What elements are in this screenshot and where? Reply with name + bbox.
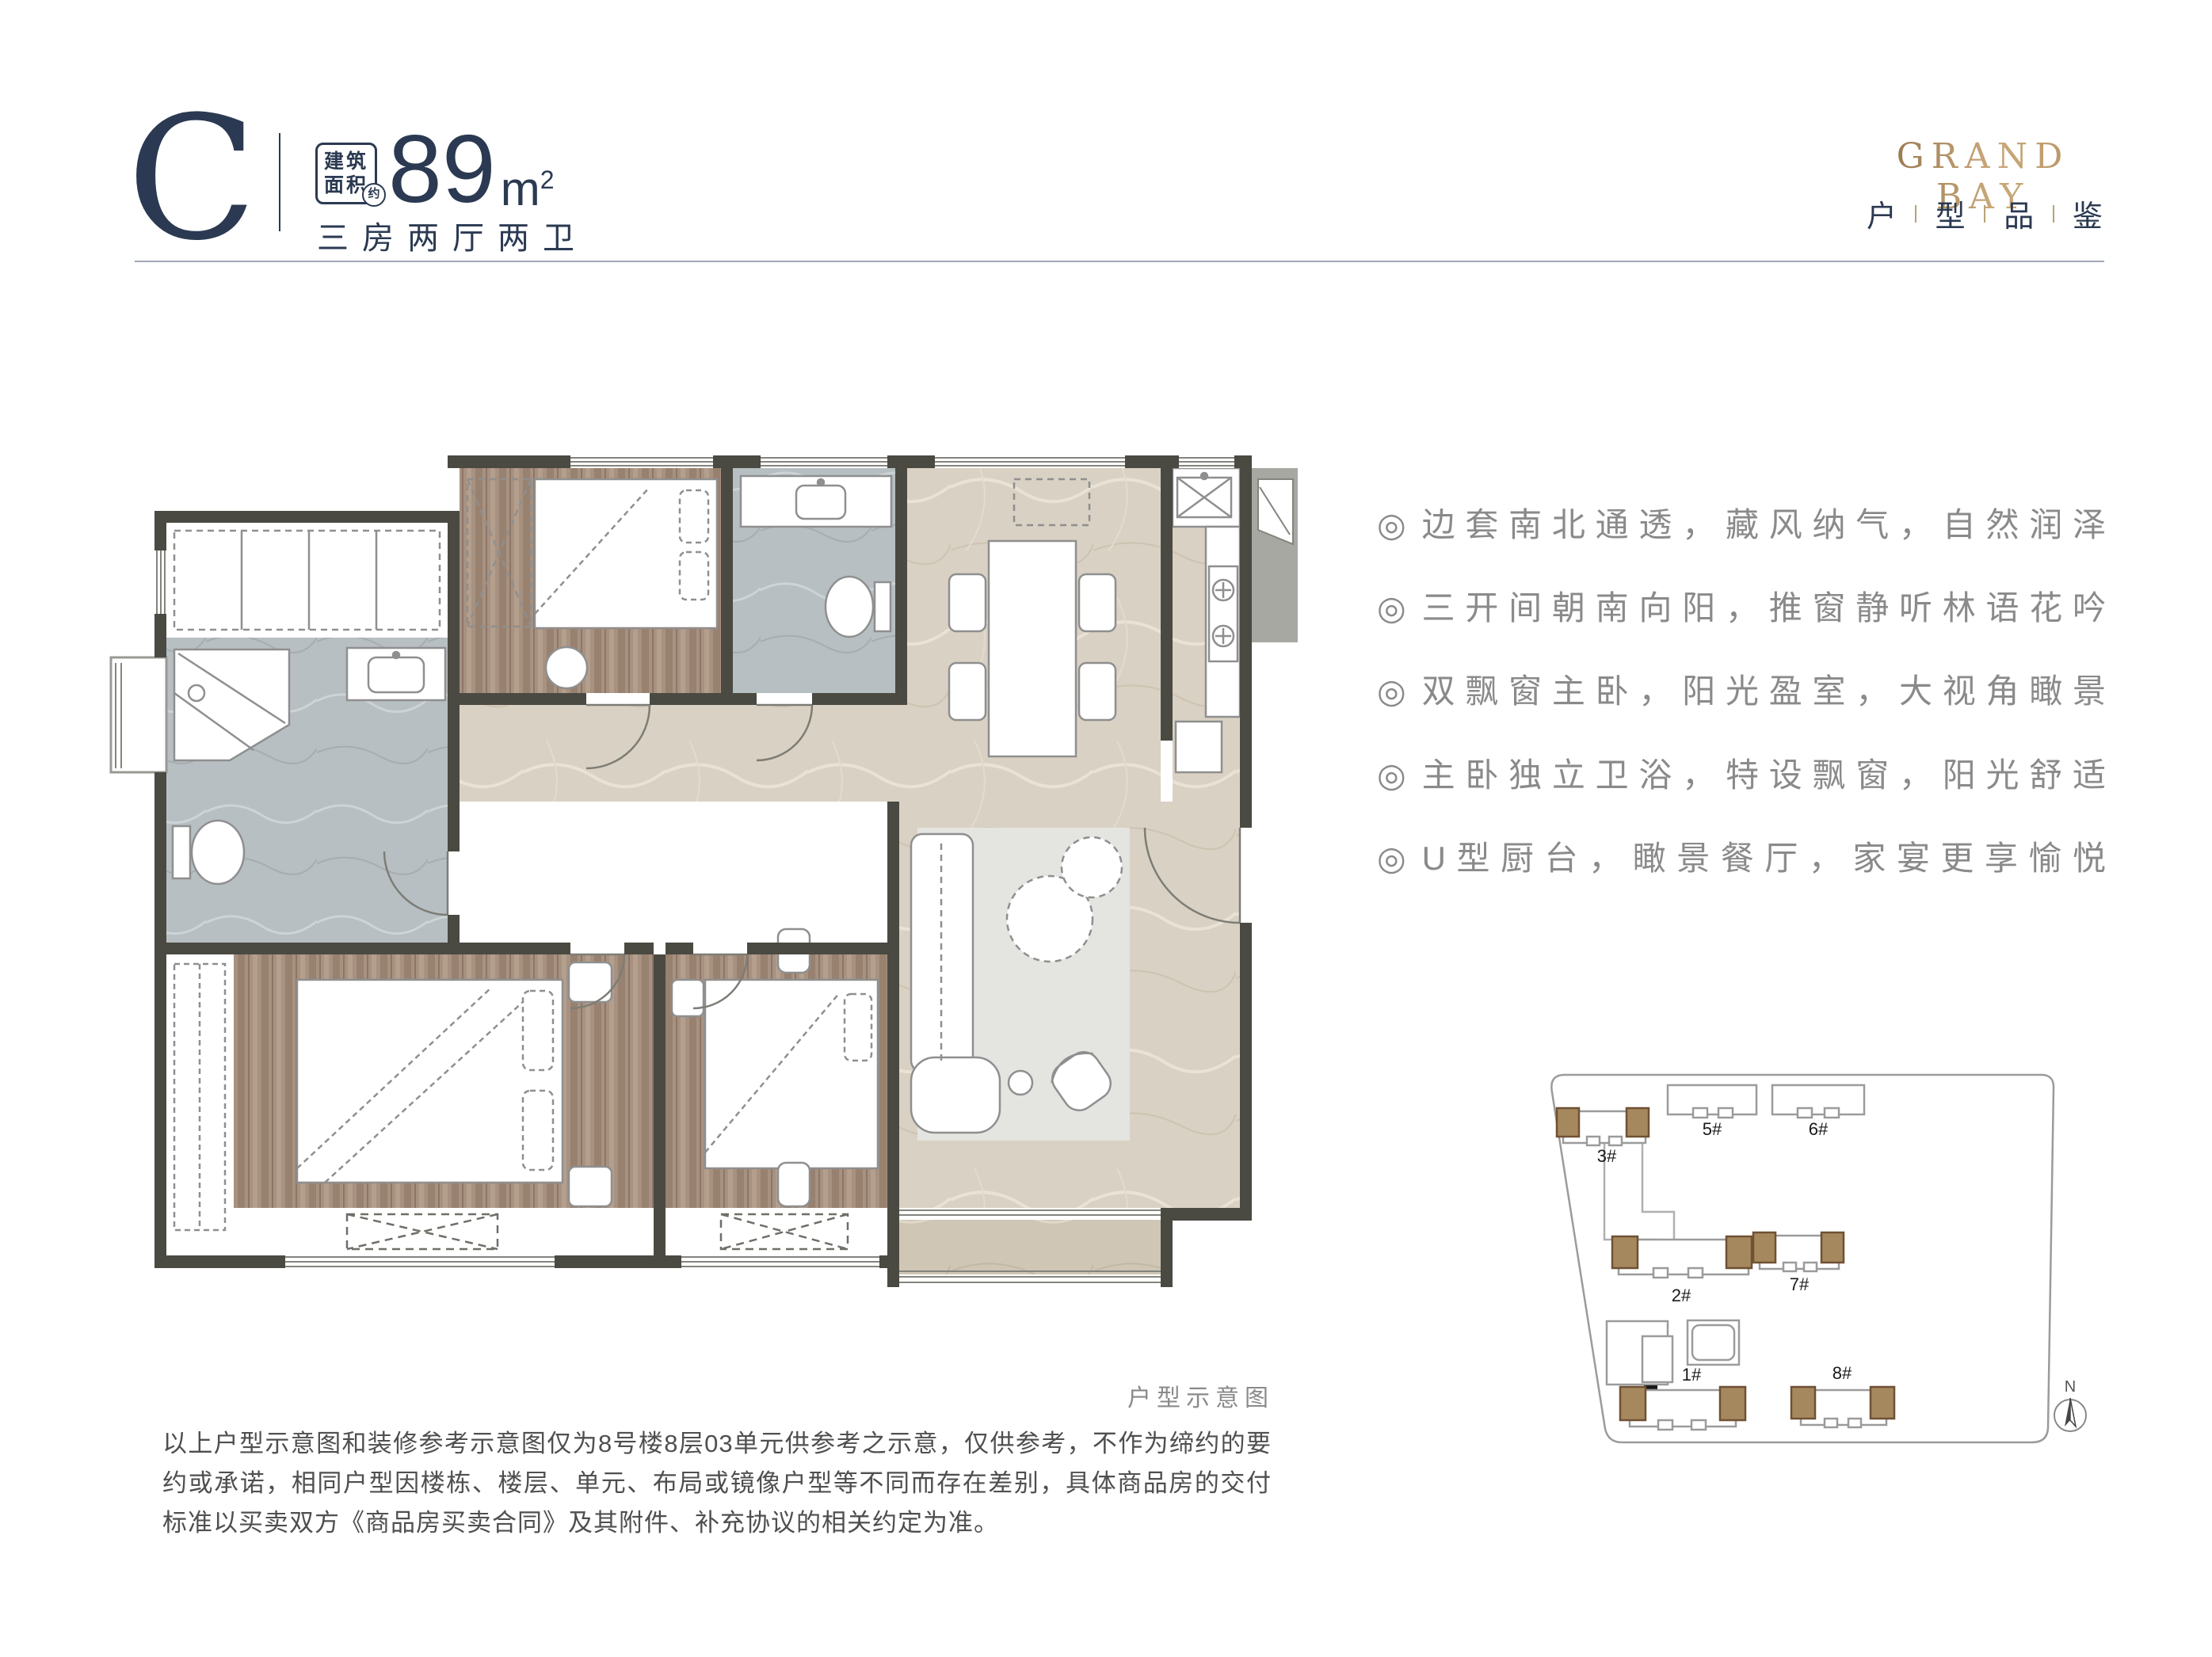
corridor — [460, 705, 907, 802]
toilet-icon — [173, 821, 244, 884]
area-group: 建筑 面积 约 89 m2 — [315, 120, 555, 217]
site-building-3 — [1557, 1108, 1649, 1145]
site-building-1 — [1620, 1387, 1745, 1430]
building-label-7: 7# — [1790, 1274, 1810, 1294]
tagline-separator — [2053, 205, 2054, 223]
stool-icon — [546, 647, 587, 688]
balcony — [899, 1220, 1161, 1274]
plan-type-letter: C — [127, 93, 257, 264]
feature-item: ◎ 三开间朝南向阳，推窗静听林语花吟 — [1377, 590, 2107, 627]
site-building-5 — [1668, 1085, 1756, 1118]
bed-single-icon — [535, 479, 717, 628]
site-building-7 — [1753, 1232, 1844, 1271]
feature-bullet: ◎ — [1377, 507, 1408, 543]
tagline-char: 型 — [1935, 192, 1966, 235]
north-compass-icon: N — [2054, 1378, 2086, 1431]
sink-icon — [796, 486, 845, 519]
header-rule — [135, 261, 2104, 262]
bed-double-icon — [705, 980, 878, 1168]
coffee-table-icon — [1062, 837, 1122, 897]
brand-tagline: 户 型 品 鉴 — [1867, 192, 2103, 235]
header-vertical-divider — [279, 133, 280, 231]
tagline-char: 鉴 — [2073, 192, 2103, 235]
site-plan: 1# 2# 3# 5# 6# 7# 8# N — [1525, 1049, 2092, 1457]
building-label-3: 3# — [1597, 1146, 1617, 1166]
building-label-6: 6# — [1809, 1119, 1829, 1139]
feature-list: ◎ 边套南北通透，藏风纳气，自然润泽 ◎ 三开间朝南向阳，推窗静听林语花吟 ◎ … — [1377, 507, 2107, 924]
area-badge-line1: 建筑 — [324, 150, 368, 173]
ac-unit-icon — [778, 1163, 810, 1206]
faucet-icon — [818, 479, 824, 486]
building-label-8: 8# — [1833, 1363, 1852, 1383]
area-approx-mark: 约 — [362, 183, 386, 207]
stove-icon — [1209, 566, 1238, 661]
layout-description: 三房两厅两卫 — [317, 212, 588, 258]
feature-bullet: ◎ — [1377, 673, 1408, 710]
closet-floor — [166, 523, 448, 638]
bed-double-icon — [297, 980, 563, 1183]
area-badge: 建筑 面积 约 — [315, 143, 377, 204]
area-value: 89 — [388, 120, 496, 217]
disclaimer-text: 以上户型示意图和装修参考示意图仅为8号楼8层03单元供参考之示意，仅供参考，不作… — [162, 1424, 1272, 1544]
feature-item: ◎ U型厨台，瞰景餐厅，家宴更享愉悦 — [1377, 840, 2107, 877]
sink-icon — [368, 657, 424, 692]
feature-bullet: ◎ — [1377, 840, 1408, 877]
building-label-1: 1# — [1682, 1365, 1702, 1385]
kitchen-sink-icon — [1177, 473, 1231, 517]
tagline-char: 品 — [2004, 192, 2034, 235]
fridge-icon — [1176, 722, 1222, 772]
floor-plan — [95, 455, 1299, 1287]
equipment-platform — [1252, 468, 1298, 642]
north-label: N — [2065, 1378, 2076, 1396]
tagline-separator — [1915, 205, 1916, 223]
area-unit: m2 — [501, 162, 555, 216]
site-building-8 — [1791, 1387, 1894, 1427]
tagline-separator — [1984, 205, 1985, 223]
feature-item: ◎ 双飘窗主卧，阳光盈室，大视角瞰景 — [1377, 673, 2107, 710]
building-label-2: 2# — [1672, 1286, 1691, 1305]
nightstand-icon — [569, 1167, 612, 1206]
toilet-icon — [826, 577, 891, 637]
floor-plan-caption: 户型示意图 — [1108, 1378, 1274, 1413]
site-court — [1607, 1321, 1672, 1392]
site-amenity — [1688, 1320, 1739, 1365]
feature-bullet: ◎ — [1377, 590, 1408, 627]
feature-item: ◎ 主卧独立卫浴，特设飘窗，阳光舒适 — [1377, 757, 2107, 794]
site-building-2 — [1612, 1236, 1752, 1278]
floor-cushion-icon — [1009, 1071, 1032, 1095]
site-building-6 — [1772, 1085, 1864, 1118]
faucet-icon — [393, 652, 399, 658]
building-label-5: 5# — [1703, 1119, 1722, 1139]
feature-bullet: ◎ — [1377, 757, 1408, 794]
tagline-char: 户 — [1867, 192, 1897, 235]
side-bay-window — [111, 657, 166, 772]
feature-item: ◎ 边套南北通透，藏风纳气，自然润泽 — [1377, 507, 2107, 543]
nightstand-icon — [672, 980, 704, 1016]
